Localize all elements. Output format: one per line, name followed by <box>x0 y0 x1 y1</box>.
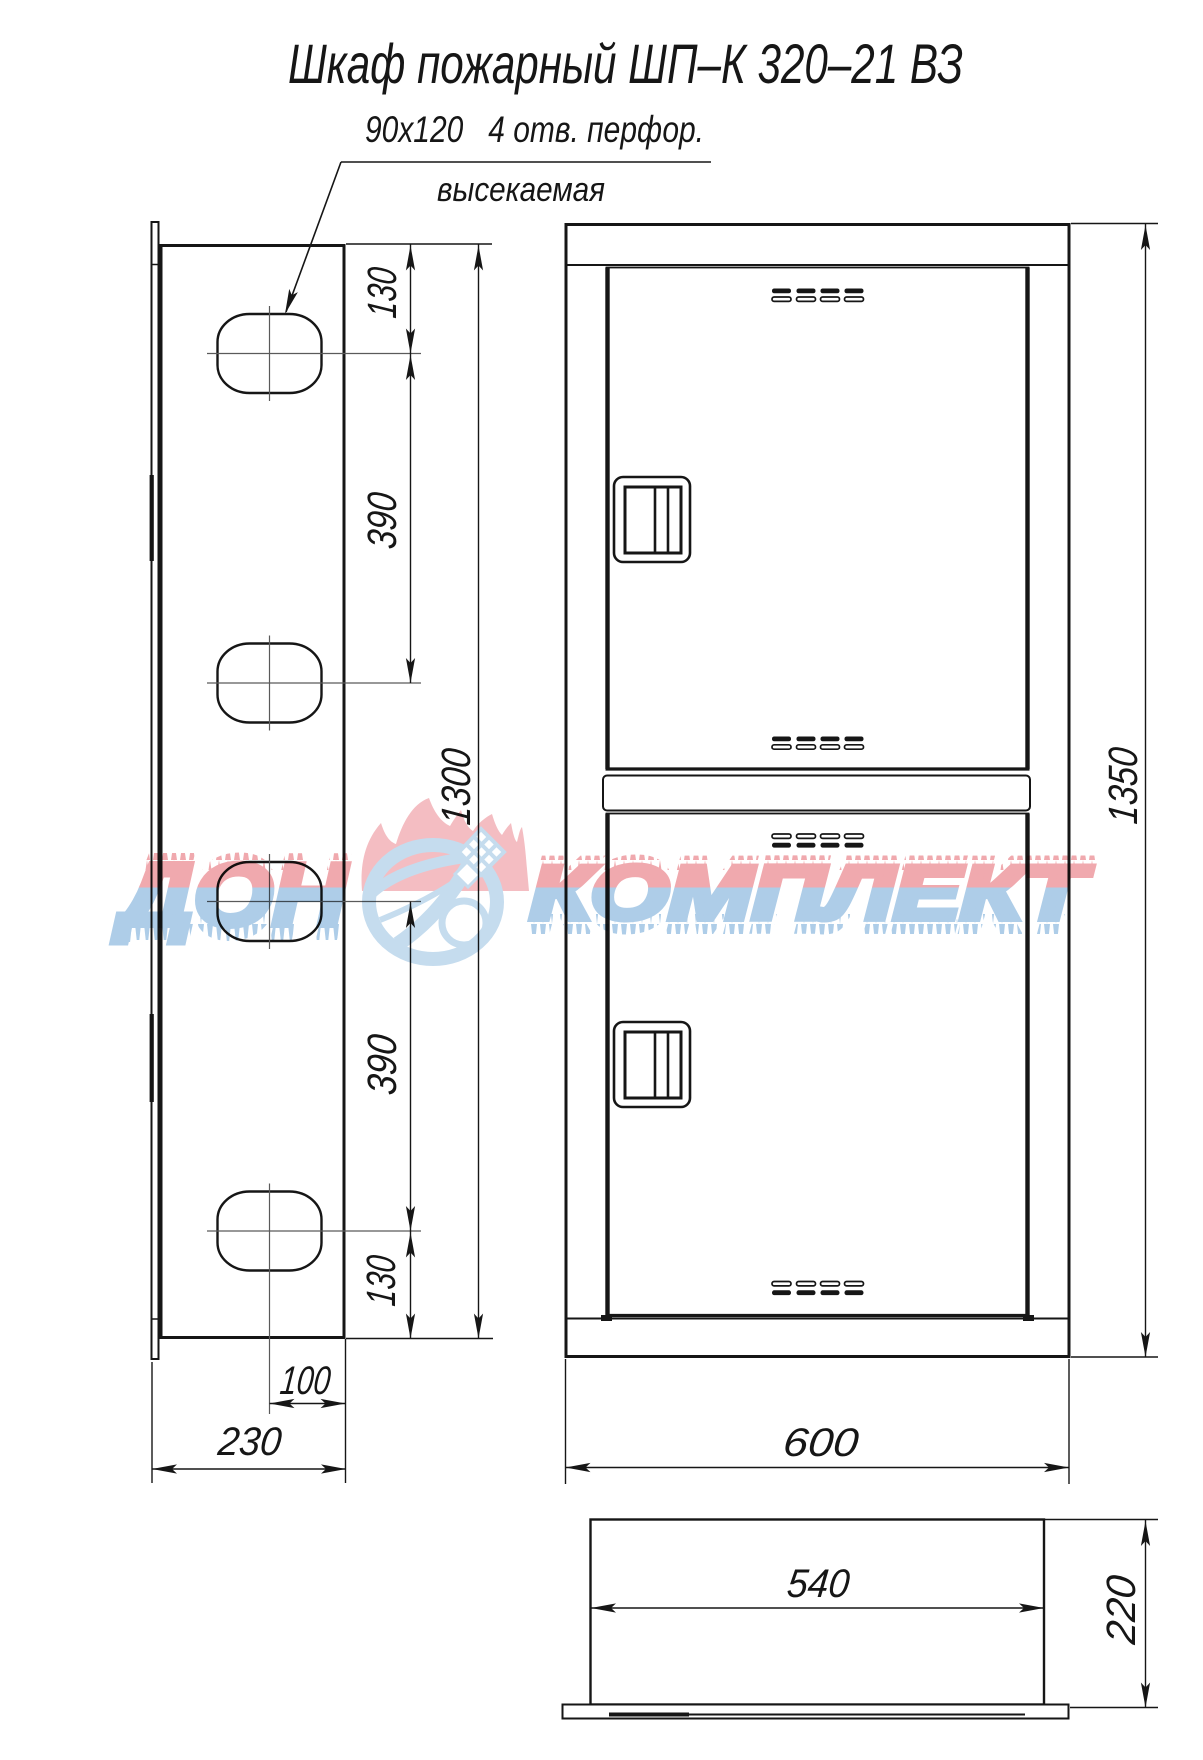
svg-text:600: 600 <box>781 1421 861 1465</box>
svg-text:высекаемая: высекаемая <box>437 171 605 209</box>
svg-text:130: 130 <box>358 1253 404 1308</box>
svg-text:Шкаф пожарный ШП–К 320–21 ВЗ: Шкаф пожарный ШП–К 320–21 ВЗ <box>288 32 963 95</box>
svg-text:90х120 4 отв. перфор.: 90х120 4 отв. перфор. <box>365 109 704 150</box>
svg-text:390: 390 <box>359 490 405 551</box>
svg-text:100: 100 <box>278 1359 333 1403</box>
svg-text:130: 130 <box>359 265 405 320</box>
svg-text:КОМПЛЕКТ: КОМПЛЕКТ <box>530 863 1092 948</box>
svg-text:1300: 1300 <box>433 746 479 827</box>
svg-text:ДОН: ДОН <box>112 857 349 956</box>
svg-text:230: 230 <box>215 1420 284 1464</box>
svg-text:390: 390 <box>359 1032 405 1097</box>
svg-text:1350: 1350 <box>1100 745 1146 826</box>
svg-text:220: 220 <box>1098 1573 1144 1647</box>
svg-text:540: 540 <box>785 1562 852 1606</box>
